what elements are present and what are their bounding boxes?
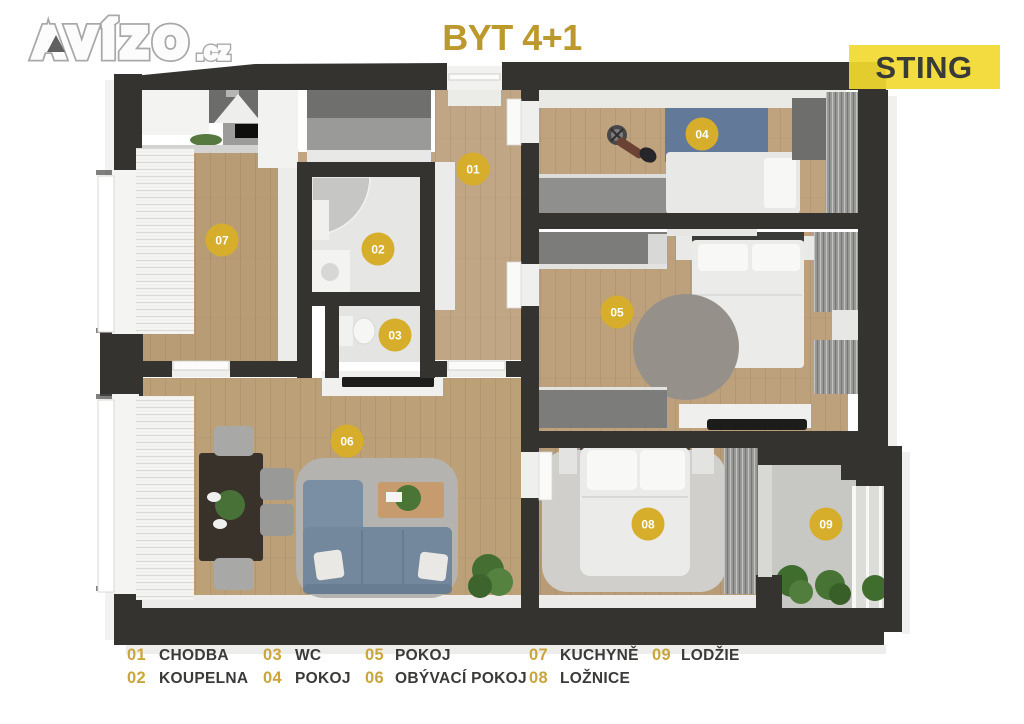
- svg-text:WC: WC: [295, 647, 321, 664]
- svg-text:06: 06: [365, 669, 384, 687]
- svg-text:POKOJ: POKOJ: [295, 670, 351, 687]
- svg-text:LODŽIE: LODŽIE: [681, 646, 740, 664]
- svg-text:KUCHYNĚ: KUCHYNĚ: [560, 646, 639, 664]
- svg-text:02: 02: [127, 669, 146, 687]
- svg-text:01: 01: [127, 646, 146, 664]
- svg-text:04: 04: [263, 669, 282, 687]
- svg-text:05: 05: [610, 306, 624, 320]
- svg-text:06: 06: [340, 435, 354, 449]
- svg-text:03: 03: [263, 646, 282, 664]
- svg-text:03: 03: [388, 329, 402, 343]
- svg-text:05: 05: [365, 646, 384, 664]
- svg-text:LOŽNICE: LOŽNICE: [560, 669, 630, 687]
- svg-text:08: 08: [529, 669, 548, 687]
- svg-text:CHODBA: CHODBA: [159, 647, 229, 664]
- svg-text:BYT 4+1: BYT 4+1: [442, 17, 582, 58]
- svg-text:09: 09: [819, 518, 833, 532]
- svg-text:STING: STING: [875, 50, 972, 85]
- svg-text:OBÝVACÍ POKOJ: OBÝVACÍ POKOJ: [395, 669, 527, 687]
- svg-text:.cz: .cz: [197, 38, 231, 64]
- svg-text:09: 09: [652, 646, 671, 664]
- svg-text:POKOJ: POKOJ: [395, 647, 451, 664]
- svg-text:04: 04: [695, 128, 709, 142]
- svg-text:KOUPELNA: KOUPELNA: [159, 670, 248, 687]
- svg-text:08: 08: [641, 518, 655, 532]
- svg-text:01: 01: [466, 163, 480, 177]
- svg-text:02: 02: [371, 243, 385, 257]
- svg-text:07: 07: [215, 234, 229, 248]
- svg-text:07: 07: [529, 646, 548, 664]
